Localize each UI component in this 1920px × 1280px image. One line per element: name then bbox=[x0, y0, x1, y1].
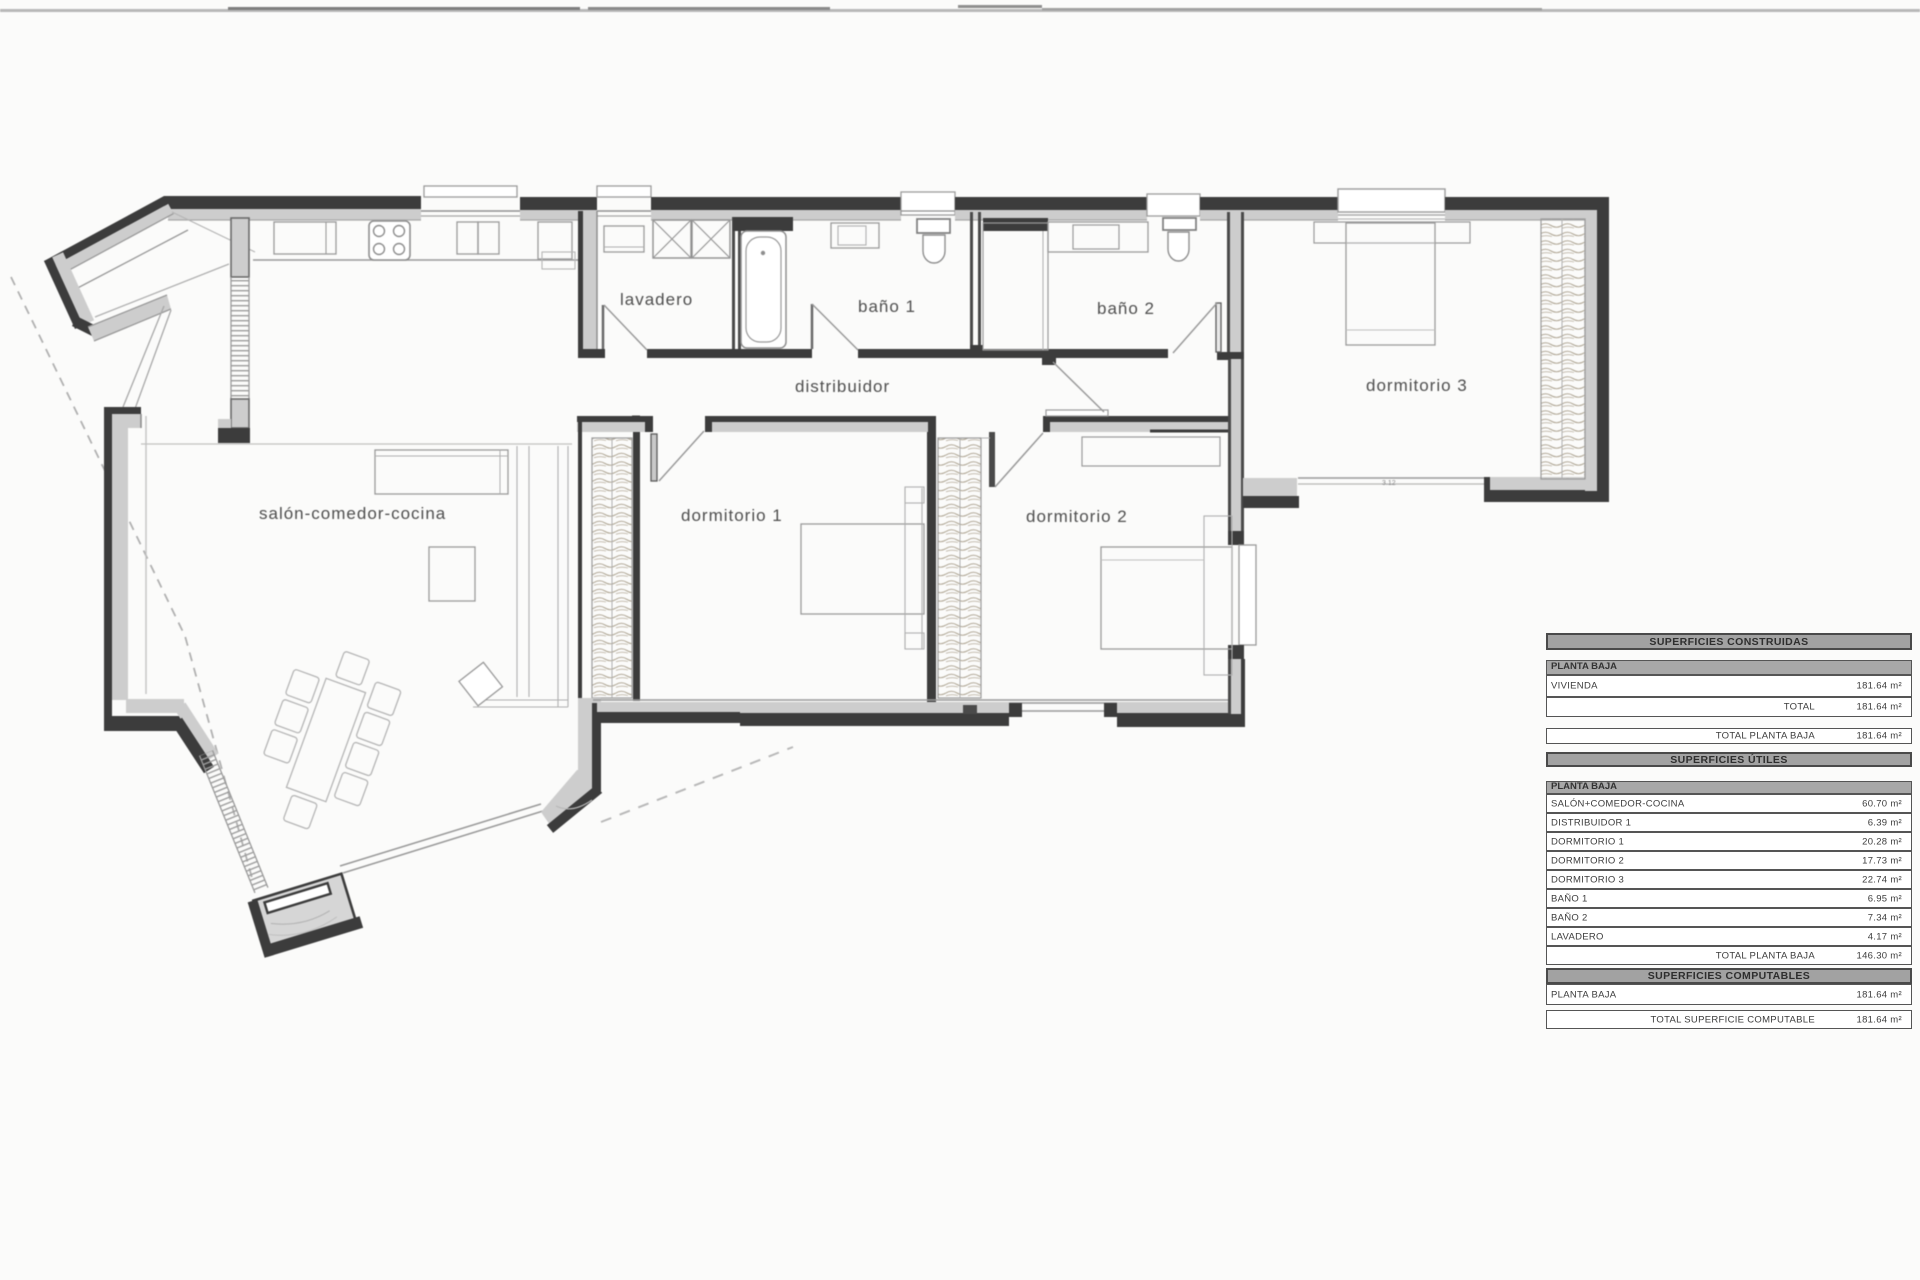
svg-text:salón-comedor-cocina: salón-comedor-cocina bbox=[259, 504, 446, 523]
svg-text:baño 2: baño 2 bbox=[1097, 299, 1155, 318]
svg-text:3.12: 3.12 bbox=[1382, 480, 1396, 487]
svg-text:dormitorio 2: dormitorio 2 bbox=[1026, 507, 1128, 526]
svg-text:dormitorio 3: dormitorio 3 bbox=[1366, 376, 1468, 395]
svg-text:lavadero: lavadero bbox=[620, 290, 693, 309]
svg-text:dormitorio 1: dormitorio 1 bbox=[681, 506, 783, 525]
svg-text:baño 1: baño 1 bbox=[858, 297, 916, 316]
svg-text:distribuidor: distribuidor bbox=[795, 377, 890, 396]
